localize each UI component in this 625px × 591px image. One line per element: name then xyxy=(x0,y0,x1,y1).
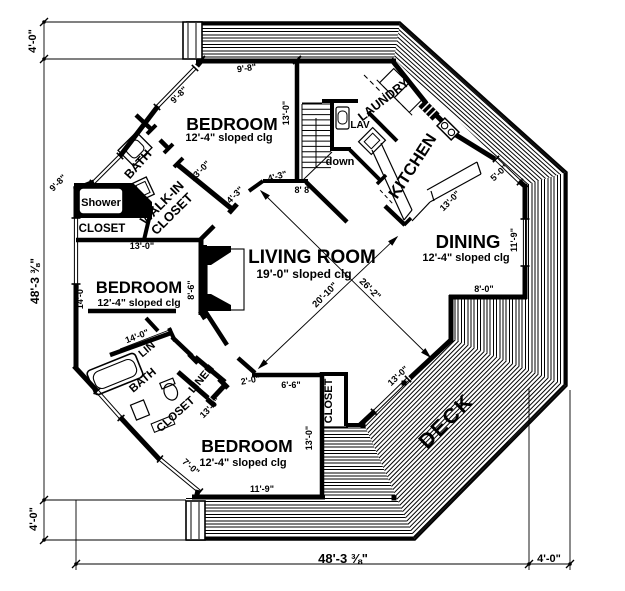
svg-text:12'-4" sloped clg: 12'-4" sloped clg xyxy=(97,297,180,309)
svg-text:19'-0" sloped clg: 19'-0" sloped clg xyxy=(256,267,351,281)
svg-text:12'-4" sloped clg: 12'-4" sloped clg xyxy=(422,252,509,264)
svg-text:48'-3 ⅜": 48'-3 ⅜" xyxy=(28,258,42,304)
svg-text:4'-0": 4'-0" xyxy=(537,553,561,565)
svg-text:13'-0": 13'-0" xyxy=(130,241,154,251)
svg-text:12'-4" sloped clg: 12'-4" sloped clg xyxy=(199,457,286,469)
svg-text:BEDROOM: BEDROOM xyxy=(201,436,292,456)
svg-text:8'-0": 8'-0" xyxy=(474,284,493,294)
svg-text:CLOSET: CLOSET xyxy=(323,378,335,423)
svg-text:4'-0": 4'-0" xyxy=(28,507,40,531)
svg-text:DINING: DINING xyxy=(436,231,501,252)
svg-text:Shower: Shower xyxy=(81,197,121,209)
svg-text:CLOSET: CLOSET xyxy=(79,223,126,235)
svg-text:6'-6": 6'-6" xyxy=(281,380,300,390)
svg-text:11'-9": 11'-9" xyxy=(509,228,519,252)
svg-text:13'-0": 13'-0" xyxy=(281,101,291,125)
svg-text:8' 8": 8' 8" xyxy=(295,185,314,195)
svg-text:down: down xyxy=(326,156,355,168)
svg-text:8'-6": 8'-6" xyxy=(186,280,196,299)
svg-text:LIVING ROOM: LIVING ROOM xyxy=(248,247,376,268)
svg-text:BEDROOM: BEDROOM xyxy=(186,114,277,134)
svg-text:12'-4" sloped clg: 12'-4" sloped clg xyxy=(185,132,272,144)
svg-text:48'-3 ⅜": 48'-3 ⅜" xyxy=(318,551,368,566)
svg-text:14'-0": 14'-0" xyxy=(75,285,85,309)
svg-text:LAV: LAV xyxy=(350,120,370,131)
svg-text:BEDROOM: BEDROOM xyxy=(96,279,182,297)
svg-text:4'-0": 4'-0" xyxy=(27,29,39,53)
svg-text:11'-9": 11'-9" xyxy=(250,484,274,494)
svg-text:13'-0": 13'-0" xyxy=(304,426,314,450)
